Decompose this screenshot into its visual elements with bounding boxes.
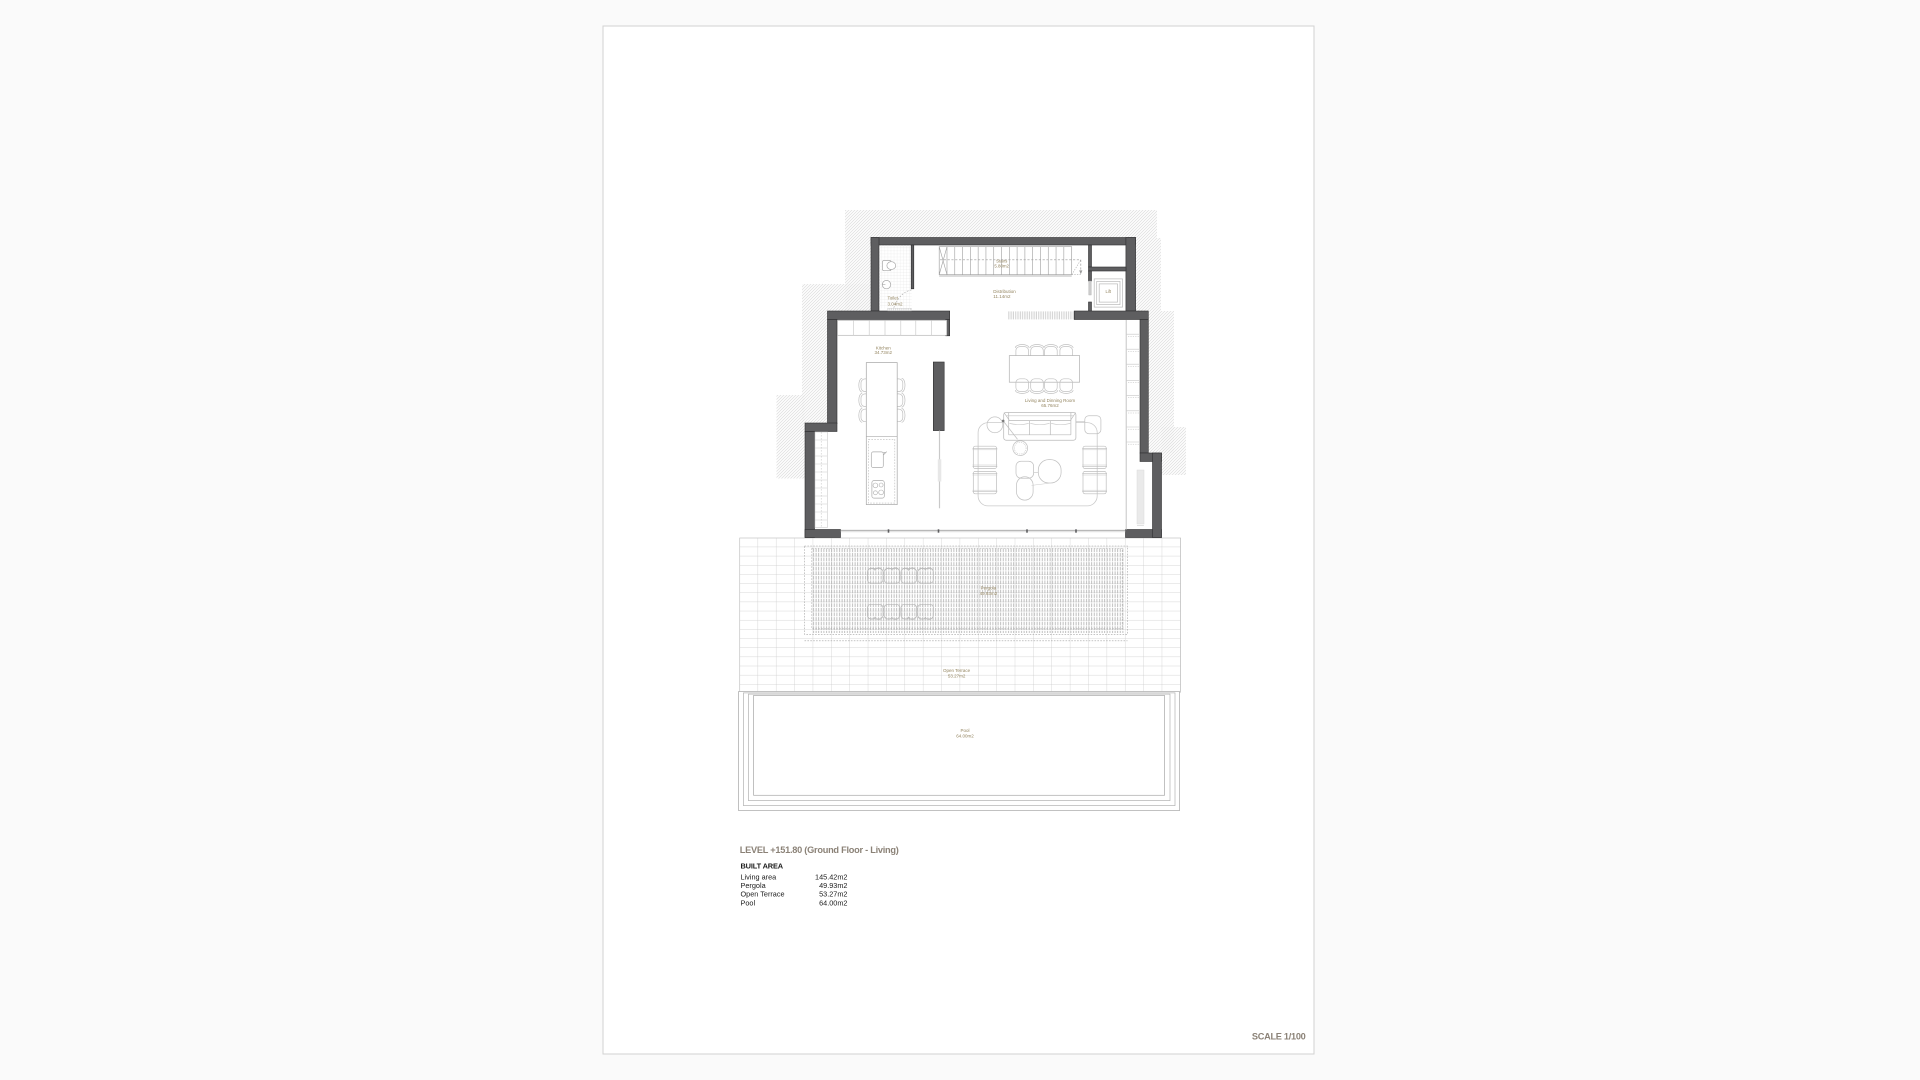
svg-text:3.04m2: 3.04m2 <box>888 301 904 306</box>
svg-text:5.80m2: 5.80m2 <box>994 264 1009 269</box>
svg-text:Toilet: Toilet <box>888 295 899 300</box>
svg-text:Pool: Pool <box>960 728 969 733</box>
svg-text:65.76m2: 65.76m2 <box>1041 403 1059 408</box>
svg-text:64.00m2: 64.00m2 <box>956 734 974 739</box>
svg-text:49.93m2: 49.93m2 <box>819 881 847 890</box>
svg-text:SCALE 1/100: SCALE 1/100 <box>1252 1032 1306 1042</box>
svg-text:BUILT AREA: BUILT AREA <box>741 861 784 870</box>
svg-text:Pergola: Pergola <box>981 586 997 591</box>
svg-text:53.27m2: 53.27m2 <box>948 674 966 679</box>
svg-text:Open Terrace: Open Terrace <box>943 668 971 673</box>
svg-text:Lift: Lift <box>1106 289 1112 294</box>
svg-text:Living area: Living area <box>741 872 778 881</box>
svg-text:LEVEL +151.80 (Ground Floor -: LEVEL +151.80 (Ground Floor - Living) <box>740 845 899 855</box>
svg-text:34.73m2: 34.73m2 <box>875 350 893 355</box>
svg-text:49.93m2: 49.93m2 <box>980 591 998 596</box>
svg-text:145.42m2: 145.42m2 <box>815 872 847 881</box>
svg-text:Pergola: Pergola <box>741 881 767 890</box>
svg-text:Open Terrace: Open Terrace <box>741 890 785 899</box>
svg-text:64.00m2: 64.00m2 <box>819 898 847 907</box>
svg-text:11.14m2: 11.14m2 <box>993 294 1011 299</box>
svg-text:53.27m2: 53.27m2 <box>819 890 847 899</box>
svg-text:Pool: Pool <box>741 898 756 907</box>
